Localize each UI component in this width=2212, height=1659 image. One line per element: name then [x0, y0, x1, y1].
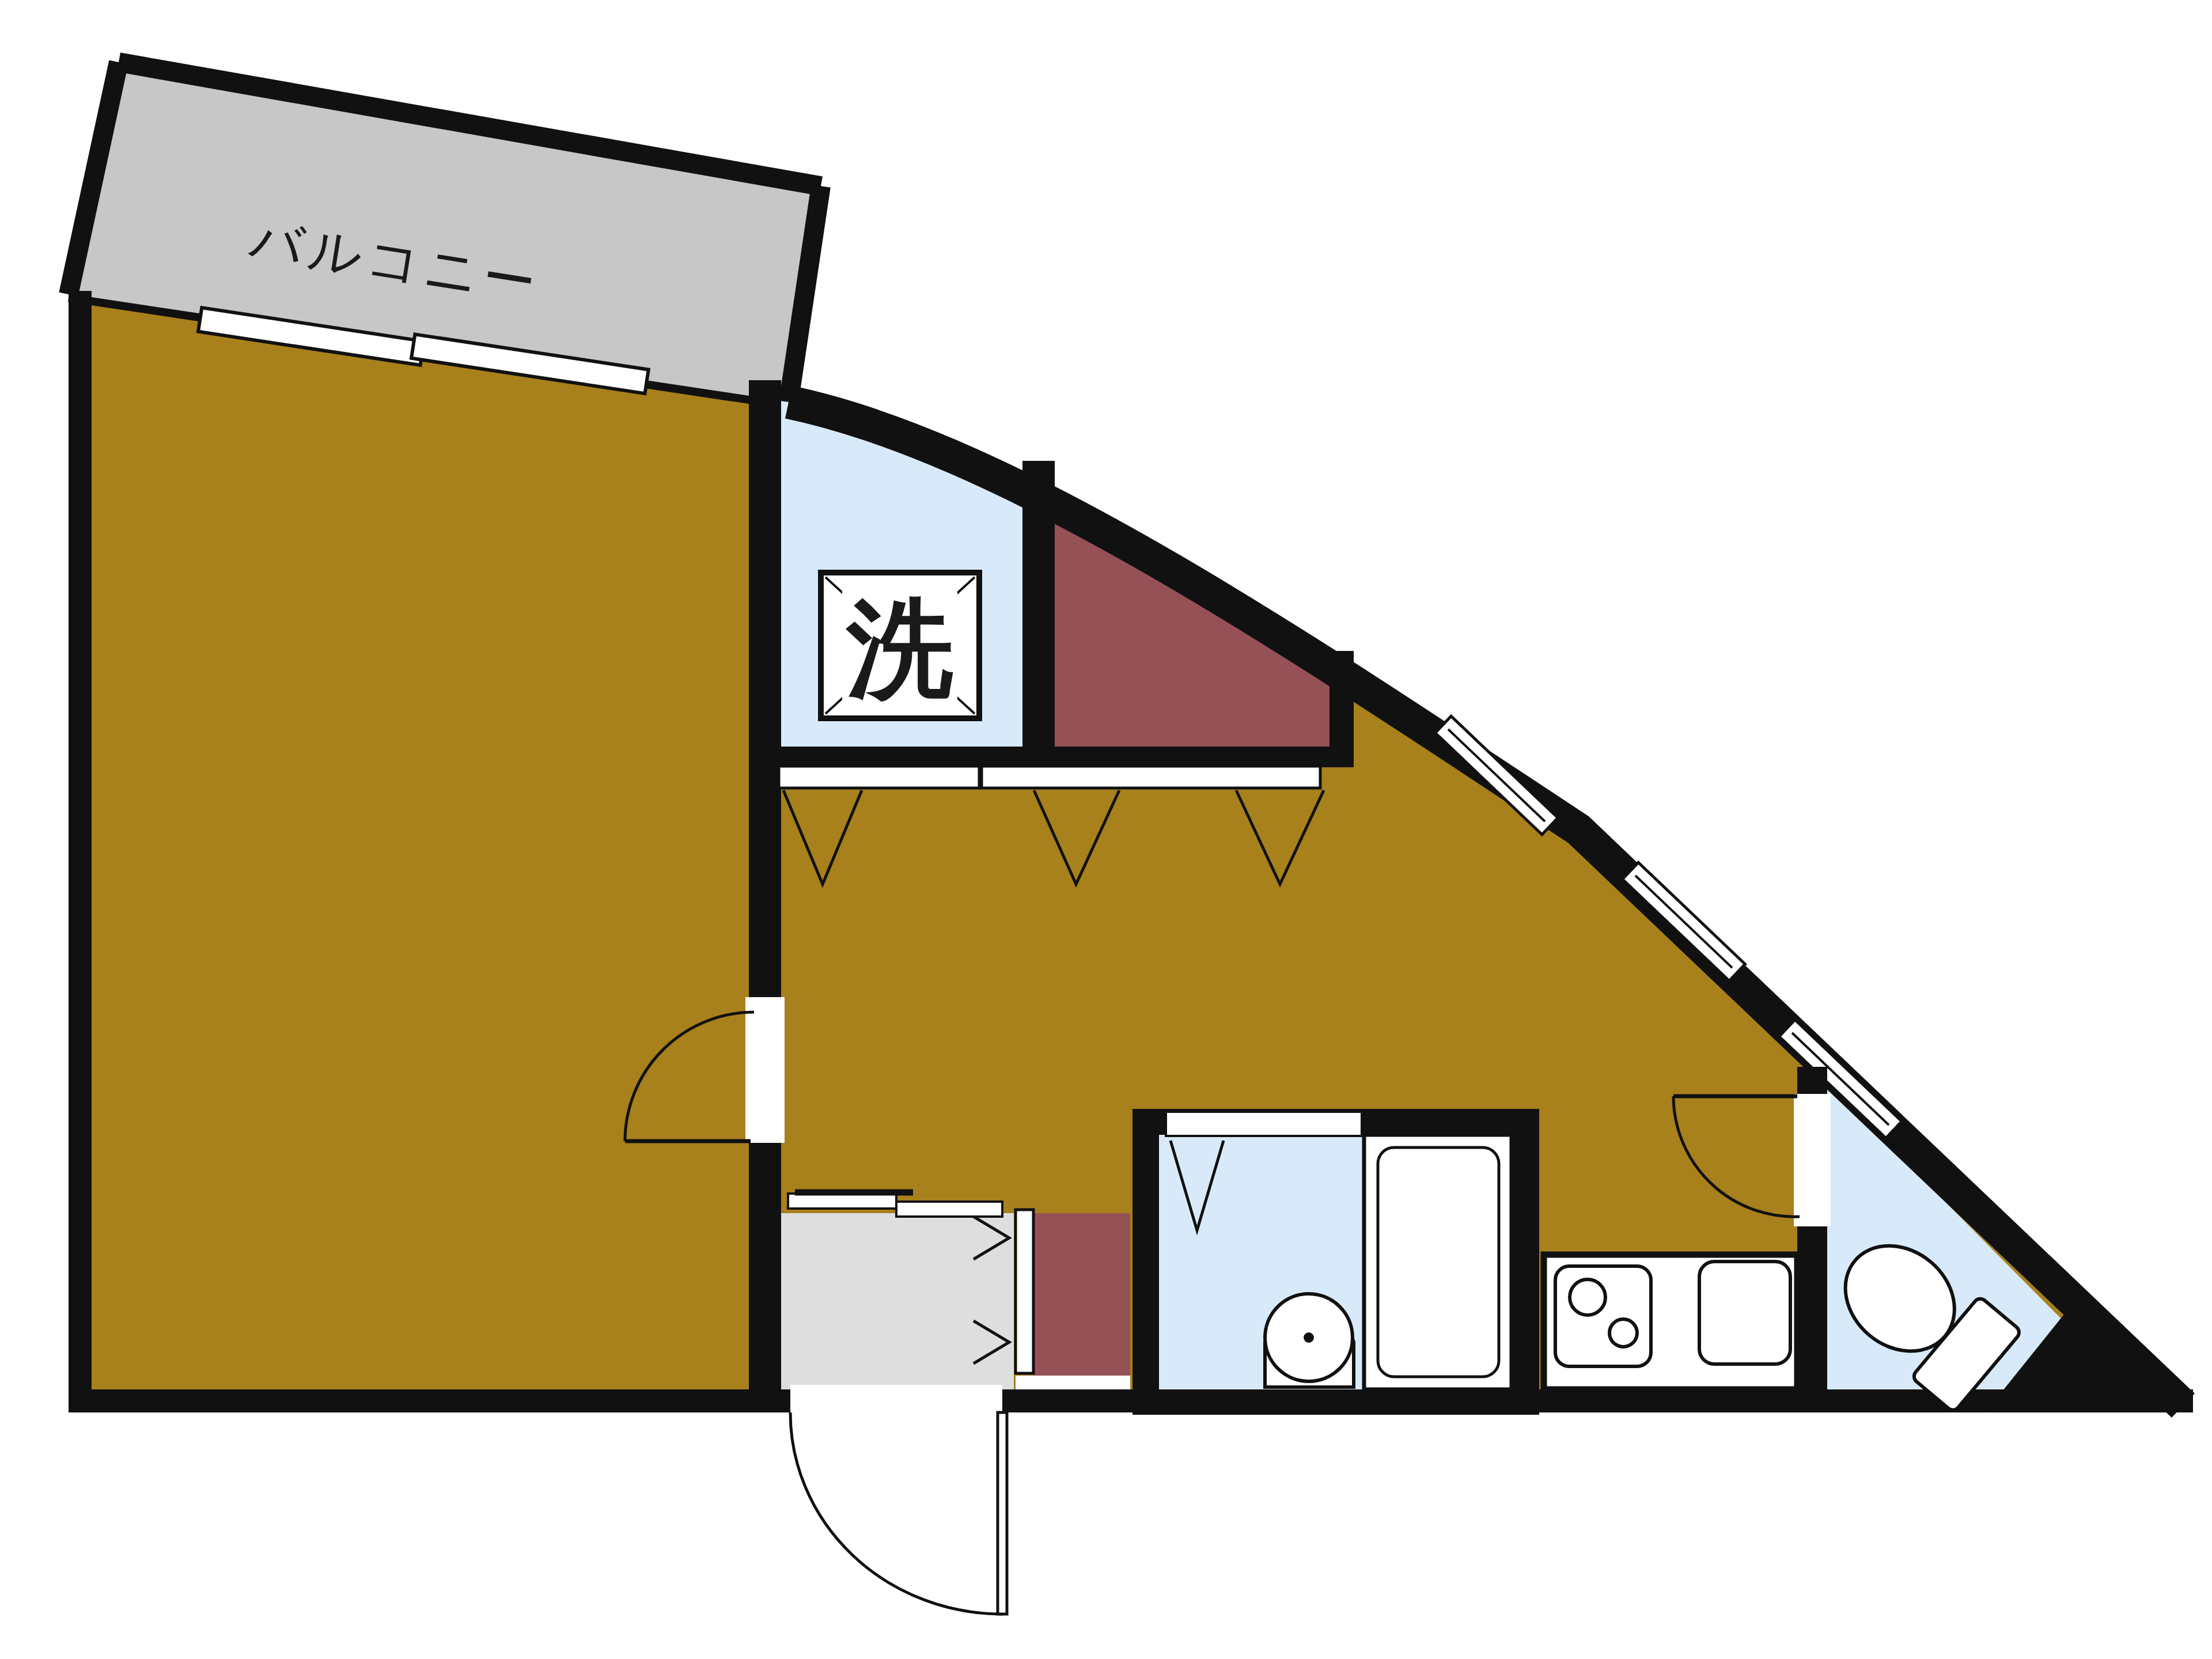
stove-burner-2 — [1609, 1319, 1637, 1347]
washing-machine: 洗 — [821, 573, 979, 718]
kitchen-sink — [1699, 1262, 1790, 1364]
closet-front-wall — [781, 747, 1353, 767]
front-door-arc — [790, 1412, 1002, 1614]
closet-lower-threshold — [1016, 1376, 1130, 1391]
stove — [1555, 1266, 1651, 1366]
toilet-door-opening — [1794, 1094, 1831, 1226]
bathroom-door — [1166, 1112, 1362, 1136]
bottom-wall — [69, 1389, 2193, 1412]
shoe-cabinet-door — [1016, 1210, 1033, 1373]
floor-plan-canvas: バルコニー — [0, 0, 2212, 1659]
bathtub — [1364, 1135, 1512, 1389]
genkan-divider-right — [896, 1202, 1002, 1217]
living-room-door-opening — [745, 997, 785, 1143]
left-wall — [69, 291, 92, 1412]
stove-burner-1 — [1570, 1279, 1605, 1315]
genkan-divider-left — [788, 1194, 896, 1209]
front-door-leaf — [998, 1412, 1007, 1614]
entrance-genkan — [781, 1213, 1014, 1389]
closet-lower — [1033, 1213, 1130, 1376]
washbasin-drain — [1304, 1332, 1314, 1343]
floor-plan: バルコニー — [0, 0, 2212, 1659]
laundry-fold-door — [779, 766, 979, 788]
closet-fold-door — [982, 766, 1320, 788]
front-door-opening — [790, 1385, 1002, 1415]
dividing-wall — [749, 380, 781, 1391]
laundry-closet-wall — [1022, 461, 1055, 767]
bathroom — [1132, 1109, 1539, 1415]
washer-label: 洗 — [846, 589, 954, 708]
kitchen — [1544, 1255, 1797, 1389]
